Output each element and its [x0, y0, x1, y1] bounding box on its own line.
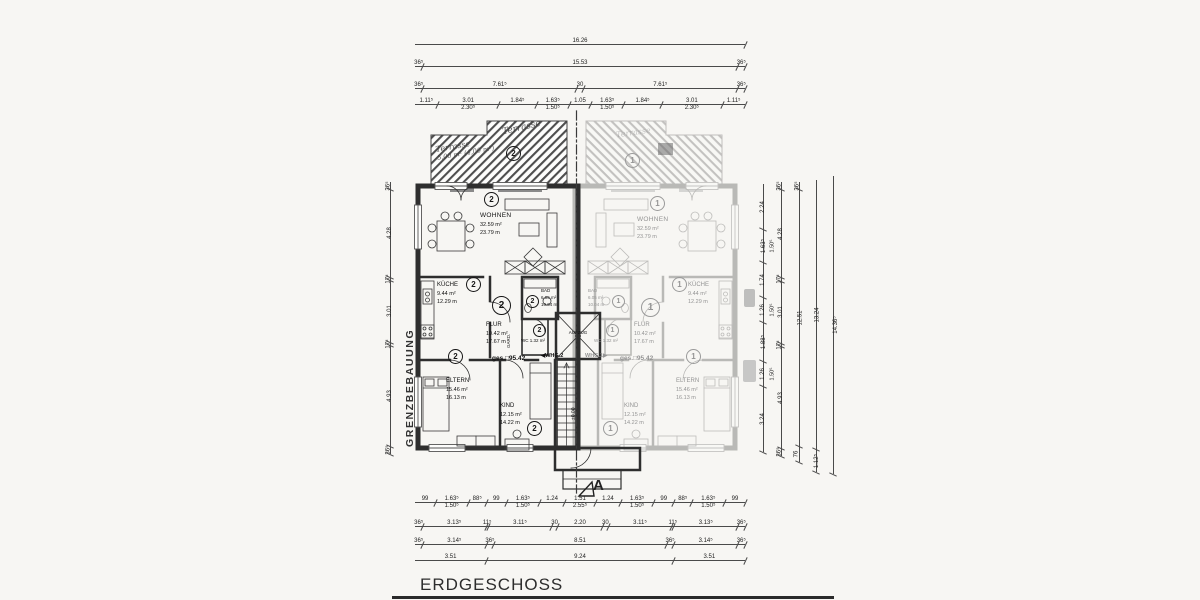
dim-segment: 99 — [654, 492, 674, 506]
scan-smudge-2 — [743, 360, 756, 382]
dim-row-top-3: 36⁵7.61⁵307.61⁵36⁵ — [415, 78, 745, 92]
dim-row-top-4: 1.11⁵3.012.30⁵1.84⁵1.63⁵1.50⁵1.051.63⁵1.… — [415, 94, 745, 108]
dim-segment: 36⁵ — [415, 78, 422, 92]
unit-badge-wc-1: 1 — [606, 324, 619, 337]
dim-segment: 3.14⁵ — [674, 534, 738, 548]
dim-segment: 12.51 — [792, 190, 806, 447]
scan-smudge-1 — [744, 289, 755, 307]
total-area-1: ges.□95.42 — [620, 354, 653, 364]
dim-segment: 1.05 — [569, 94, 590, 108]
unit-badge-eltern-2: 2 — [448, 349, 463, 364]
dim-segment: 3.24 — [756, 387, 770, 452]
dim-segment: 1.24 — [595, 492, 620, 506]
dim-segment: 36⁵ — [383, 447, 397, 454]
room-label-bad-2: BAD 6.05 m² 10.04 m — [541, 288, 557, 308]
dim-segment: 3.51 — [415, 550, 486, 564]
dim-segment: 3.13⁵ — [422, 516, 486, 530]
dim-segment: 4.28 — [383, 189, 397, 277]
room-label-flur-1: FLUR 10.42 m² 17.67 m — [634, 321, 656, 347]
dim-segment: 3.11⁵ — [608, 516, 671, 530]
unit-badge-bad-2: 2 — [526, 295, 539, 308]
dim-segment: 1.512.55⁵ — [565, 492, 596, 506]
scanned-floorplan-page: 16.26 36⁵15.5336⁵ 36⁵7.61⁵307.61⁵36⁵ 1.1… — [0, 0, 1200, 600]
dim-segment: 36⁵ — [415, 56, 422, 70]
unit-badge-bad-1: 1 — [612, 295, 625, 308]
unit-badge-wc-2: 2 — [533, 324, 546, 337]
dim-segment: 4.93 — [383, 346, 397, 447]
dim-segment: 1.12⁵ — [809, 449, 823, 472]
dim-segment: 99 — [486, 492, 506, 506]
room-label-kueche-2: KÜCHE 9.44 m² 12.29 m — [437, 281, 458, 307]
unit-badge-flur-2: 2 — [492, 296, 511, 315]
room-label-eltern-2: ELTERN 15.46 m² 16.13 m — [446, 377, 469, 403]
dim-segment: 1.63⁵1.50⁵ — [692, 492, 725, 506]
dim-segment: 1.63⁵1.50⁵ — [536, 94, 569, 108]
dim-segment: 1.24 — [540, 492, 565, 506]
total-area-2: ges.□95.42 — [492, 354, 525, 364]
elevator-label: AUFZUG — [558, 330, 598, 337]
dim-segment: 1.63⁵1.50⁵ — [506, 492, 539, 506]
dim-row-bottom-1: 991.63⁵1.50⁵88⁵991.63⁵1.50⁵1.241.512.55⁵… — [415, 492, 745, 506]
dim-segment: 3.13⁵ — [674, 516, 738, 530]
dim-segment: 1.74 — [756, 262, 770, 297]
dim-segment: 9.24 — [486, 550, 674, 564]
dim-segment: 36⁵ — [415, 534, 422, 548]
room-label-gard-2: GARD. — [506, 334, 513, 348]
dim-row-bottom-4: 3.519.243.51 — [415, 550, 745, 564]
dim-col-right-2: 36⁵4.2817⁵3.0117⁵4.9336⁵ — [774, 182, 788, 456]
dim-segment: 36⁵ — [792, 182, 806, 190]
dim-segment: 3.01 — [774, 281, 788, 343]
dim-segment: 3.11⁵ — [488, 516, 551, 530]
dim-segment: 36⁵ — [774, 182, 788, 190]
level-marker: ±0.00 — [571, 408, 579, 420]
dim-segment: 1.261.50⁵ — [756, 297, 770, 322]
dim-segment: 36⁵ — [415, 516, 422, 530]
unit-badge-kueche-1: 1 — [672, 277, 687, 292]
dim-segment: 3.012.30⁵ — [438, 94, 499, 108]
dim-segment: 1.11⁵ — [722, 94, 745, 108]
dim-segment: 36⁵ — [738, 78, 745, 92]
dim-col-left: 36⁵4.2817⁵3.0117⁵4.9336⁵ — [383, 182, 397, 454]
dim-segment: 7.61⁵ — [422, 78, 577, 92]
dim-segment: 1.261.50⁵ — [756, 361, 770, 386]
dim-col-right-5: 14.36⁵ — [826, 176, 840, 474]
boundary-label: GRENZBEBAUUNG — [404, 329, 416, 447]
dim-segment: 2.20 — [558, 516, 603, 530]
dim-segment: 1.88⁵ — [756, 323, 770, 361]
chimney-block — [658, 143, 673, 155]
dim-segment: 15.53 — [422, 56, 737, 70]
dim-segment: 36⁵ — [774, 448, 788, 456]
dim-segment: 1.63⁵1.50⁵ — [435, 492, 468, 506]
unit-badge-eltern-1: 1 — [686, 349, 701, 364]
dim-segment: 4.93 — [774, 347, 788, 449]
dim-segment: 76 — [792, 446, 806, 462]
dim-segment: 13.24 — [809, 180, 823, 449]
unit-badge-wohnen-1: 1 — [650, 196, 665, 211]
apartment-1-plan-faint — [575, 121, 739, 452]
dim-row-bottom-2: 36⁵3.13⁵11⁵3.11⁵302.20303.11⁵11⁵3.13⁵36⁵ — [415, 516, 745, 530]
dim-segment: 88⁵ — [468, 492, 486, 506]
unit-badge-kueche-2: 2 — [466, 277, 481, 292]
dim-row-bottom-3: 36⁵3.14⁵36⁵8.5136⁵3.14⁵36⁵ — [415, 534, 745, 548]
dim-segment: 7.61⁵ — [583, 78, 738, 92]
room-label-eltern-1: ELTERN 15.46 m² 16.13 m — [676, 377, 699, 403]
dim-col-right-3: 36⁵12.5176 — [792, 182, 806, 462]
section-marker-label: A — [593, 477, 604, 494]
room-label-flur-2: FLUR 10.42 m² 17.67 m — [486, 321, 508, 347]
unit-badge-terrace-1: 1 — [625, 153, 640, 168]
room-label-kind-1: KIND 12.15 m² 14.22 m — [624, 402, 646, 428]
dim-row-top-overall: 16.26 — [415, 34, 745, 48]
dim-segment: 4.28 — [774, 190, 788, 278]
dim-segment: 1.84⁵ — [499, 94, 536, 108]
dim-segment: 36⁵ — [738, 56, 745, 70]
dim-segment: 1.63⁵1.50⁵ — [621, 492, 654, 506]
dim-segment: 36⁵ — [486, 534, 493, 548]
dim-segment: 3.01 — [383, 281, 397, 343]
room-label-wohnen-2: WOHNEN 32.59 m² 23.79 m — [480, 211, 511, 237]
room-label-kueche-1: KÜCHE 9.44 m² 12.29 m — [688, 281, 709, 307]
room-label-kind-2: KIND 12.15 m² 14.22 m — [500, 402, 522, 428]
page-title: ERDGESCHOSS — [420, 575, 563, 595]
dim-col-right-4: 13.241.12⁵ — [809, 180, 823, 472]
dim-col-right-1: 2.241.63⁵1.50⁵1.741.261.50⁵1.88⁵1.261.50… — [756, 184, 770, 452]
dim-segment: 8.51 — [494, 534, 667, 548]
whg1-arrow-label: WHG.1▶ — [585, 352, 607, 360]
dim-segment: 36⁵ — [383, 182, 397, 189]
unit-badge-wohnen-2: 2 — [484, 192, 499, 207]
dim-segment: 1.11⁵ — [415, 94, 438, 108]
unit-badge-kind-1: 1 — [603, 421, 618, 436]
dim-segment: 3.51 — [674, 550, 745, 564]
dim-segment: 1.63⁵1.50⁵ — [591, 94, 624, 108]
dim-segment: 36⁵ — [738, 516, 745, 530]
room-label-wc-1: WC 1.32 m² — [594, 338, 618, 345]
room-label-wc-2: WC 1.32 m² — [521, 338, 545, 345]
dim-segment: 1.84⁵ — [624, 94, 661, 108]
dim-segment: 99 — [725, 492, 745, 506]
room-label-wohnen-1: WOHNEN 32.59 m² 23.79 m — [637, 215, 668, 241]
dim-segment: 3.14⁵ — [422, 534, 486, 548]
dim-segment: 88⁵ — [674, 492, 692, 506]
dim-row-top-2: 36⁵15.5336⁵ — [415, 56, 745, 70]
room-label-bad-1: BAD 6.05 m² 10.04 m — [588, 288, 604, 308]
dim-segment: 1.63⁵1.50⁵ — [756, 229, 770, 262]
dim-segment: 99 — [415, 492, 435, 506]
dim-segment: 36⁵ — [738, 534, 745, 548]
dim-segment: 3.012.30⁵ — [661, 94, 722, 108]
unit-badge-terrace-2: 2 — [506, 146, 521, 161]
dim-segment: 14.36⁵ — [826, 176, 840, 474]
dim-segment: 16.26 — [415, 34, 745, 48]
scan-edge-line — [392, 596, 834, 599]
dim-segment: 2.24 — [756, 184, 770, 229]
dim-segment: 36⁵ — [666, 534, 673, 548]
unit-badge-flur-1: 1 — [641, 298, 660, 317]
whg2-arrow-label: ◀WHG.2 — [541, 352, 563, 360]
unit-badge-kind-2: 2 — [527, 421, 542, 436]
